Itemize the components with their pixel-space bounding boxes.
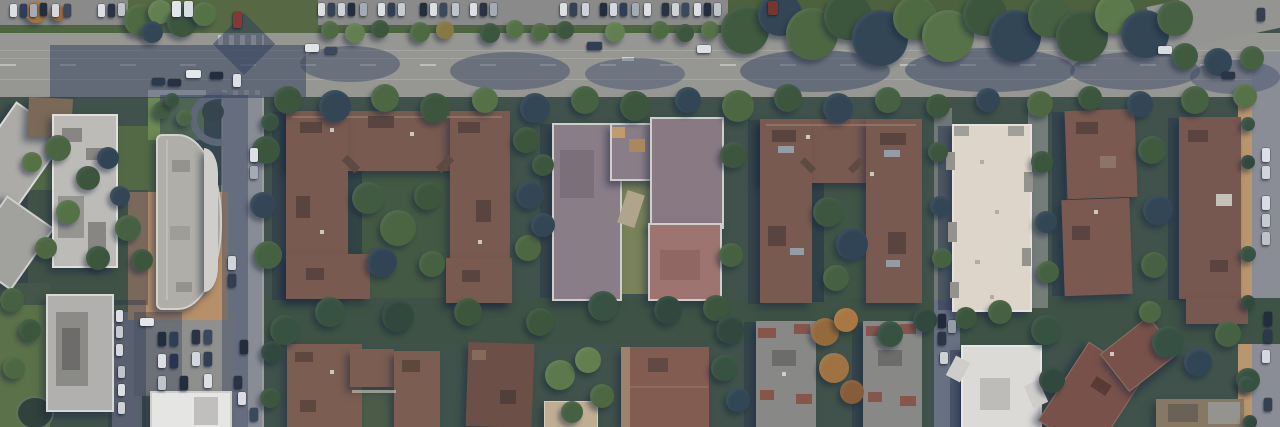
car-6 — [98, 4, 105, 17]
bldg-b-right-upper — [650, 117, 724, 229]
car-58 — [250, 166, 258, 179]
car-56 — [240, 340, 248, 354]
car-54 — [228, 256, 236, 270]
car-20 — [430, 3, 437, 16]
road-shadow-large — [50, 45, 306, 98]
tree-37 — [1240, 46, 1264, 70]
d-spot-4 — [990, 295, 994, 299]
tree-42 — [472, 87, 498, 113]
e-notch — [1100, 156, 1116, 168]
car-30 — [610, 3, 617, 16]
k1-vent — [782, 372, 786, 376]
c-vent-1 — [806, 135, 810, 139]
car-0 — [10, 4, 17, 17]
tree-56 — [1181, 86, 1209, 114]
tree-8 — [345, 23, 365, 43]
e-dark-2 — [1072, 226, 1090, 240]
car-43 — [152, 78, 165, 85]
tree-48 — [774, 84, 802, 112]
tree-123 — [110, 186, 130, 206]
a-dark-4 — [296, 196, 310, 218]
tree-64 — [250, 192, 276, 218]
car-19 — [420, 3, 427, 16]
tree-110 — [1139, 301, 1161, 323]
car-37 — [694, 3, 701, 16]
tree-83 — [930, 196, 950, 216]
car-41 — [1257, 8, 1265, 21]
car-75 — [192, 352, 200, 366]
car-25 — [490, 3, 497, 16]
tree-39 — [319, 90, 351, 122]
tree-97 — [716, 316, 744, 344]
car-40 — [768, 1, 778, 15]
tree-130 — [260, 388, 280, 408]
d-spot-3 — [975, 260, 980, 264]
car-12 — [328, 3, 335, 16]
a-dark-1 — [300, 122, 322, 133]
car-64 — [116, 344, 123, 356]
f-white-patch — [1216, 194, 1232, 206]
o-dark — [1168, 404, 1198, 422]
tree-55 — [1127, 91, 1153, 117]
d-corner-1 — [954, 126, 969, 136]
car-5 — [64, 4, 71, 17]
e-vent — [1094, 210, 1098, 214]
car-55 — [228, 274, 236, 287]
bldg-g-mid — [350, 349, 394, 387]
tree-111 — [1152, 326, 1184, 358]
j-edge — [621, 347, 630, 427]
car-44 — [168, 79, 181, 86]
tree-137 — [0, 288, 24, 312]
car-4 — [52, 4, 59, 17]
tree-79 — [813, 197, 843, 227]
tree-132 — [1241, 155, 1255, 169]
tree-84 — [932, 248, 952, 268]
tree-81 — [823, 265, 849, 291]
bldg-c-right — [866, 119, 922, 303]
car-81 — [938, 332, 946, 345]
bldg-curved-balconies — [204, 148, 218, 292]
d-spot-2 — [995, 210, 999, 214]
car-89 — [1264, 312, 1272, 326]
a-dark-3 — [458, 122, 480, 133]
car-22 — [452, 3, 459, 16]
tree-60 — [414, 182, 442, 210]
tree-52 — [976, 88, 1000, 112]
b-court-structure-1 — [612, 127, 625, 138]
g-dark-1 — [295, 352, 313, 362]
g-dark-3 — [402, 360, 420, 372]
tree-107 — [988, 300, 1012, 324]
car-52 — [233, 12, 242, 28]
car-29 — [600, 3, 607, 16]
tree-18 — [676, 24, 694, 42]
tree-116 — [76, 166, 100, 190]
tree-112 — [1184, 348, 1212, 376]
c-vent-2 — [870, 172, 874, 176]
tree-10 — [410, 22, 430, 42]
l4-core-dark — [62, 328, 80, 370]
tree-85 — [1031, 151, 1053, 173]
car-77 — [158, 376, 166, 390]
car-11 — [318, 3, 325, 16]
tree-80 — [836, 228, 868, 260]
tree-128 — [261, 113, 279, 131]
car-42 — [186, 70, 201, 78]
tree-87 — [1037, 261, 1059, 283]
car-34 — [662, 3, 669, 16]
car-31 — [620, 3, 627, 16]
tree-102 — [819, 353, 849, 383]
tree-135 — [1238, 376, 1254, 392]
tree-115 — [45, 135, 71, 161]
tree-105 — [913, 308, 937, 332]
tree-54 — [1078, 86, 1102, 110]
car-80 — [938, 314, 946, 328]
car-24 — [480, 3, 487, 16]
k1-red-2 — [794, 324, 810, 334]
car-28 — [582, 3, 589, 16]
car-61 — [250, 408, 258, 421]
car-69 — [158, 332, 166, 346]
tree-88 — [1138, 136, 1166, 164]
car-16 — [378, 3, 385, 16]
g-trim — [352, 390, 396, 393]
tree-117 — [56, 200, 80, 224]
tree-7 — [321, 21, 339, 39]
tree-106 — [955, 307, 977, 329]
car-90 — [1264, 330, 1272, 343]
tree-136 — [1243, 415, 1257, 427]
o-gray — [1208, 402, 1240, 424]
bldg-p-partial — [1186, 298, 1248, 324]
c-dark-2 — [880, 133, 906, 145]
tree-101 — [834, 308, 858, 332]
n-vent — [1110, 352, 1114, 356]
d-bump-4 — [1022, 248, 1031, 266]
car-87 — [1262, 214, 1270, 227]
a-vent-1 — [330, 128, 334, 132]
tree-61 — [367, 247, 397, 277]
bldg-bl-white — [150, 391, 232, 427]
car-78 — [180, 376, 188, 390]
k2-red-4 — [900, 396, 916, 406]
c-dark-4 — [888, 232, 906, 254]
tree-75 — [719, 243, 743, 267]
k1-red-3 — [760, 390, 774, 400]
tree-44 — [571, 86, 599, 114]
car-35 — [672, 3, 679, 16]
car-72 — [204, 330, 212, 344]
tree-127 — [165, 93, 179, 107]
h-dark — [500, 390, 516, 404]
car-60 — [238, 392, 246, 405]
tree-108 — [1031, 315, 1061, 345]
d-bump-2 — [1024, 172, 1033, 192]
car-49 — [697, 45, 711, 53]
tree-109 — [1039, 367, 1065, 393]
car-76 — [204, 352, 212, 366]
tree-122 — [22, 152, 42, 172]
tree-93 — [545, 360, 575, 390]
d-bump-3 — [948, 222, 957, 242]
car-23 — [470, 3, 477, 16]
f-dark-1 — [1188, 130, 1208, 142]
tree-43 — [520, 93, 550, 123]
tree-138 — [19, 319, 41, 341]
tree-65 — [254, 241, 282, 269]
car-48 — [587, 42, 602, 50]
a-vent-4 — [478, 240, 482, 244]
car-71 — [192, 330, 200, 344]
car-91 — [1262, 350, 1270, 363]
a-dark-6 — [306, 268, 324, 280]
bldg-d-white — [952, 124, 1032, 312]
car-82 — [948, 320, 956, 333]
tree-98 — [711, 355, 737, 381]
b-right-blotch — [660, 250, 700, 280]
tree-104 — [877, 321, 903, 347]
tree-16 — [605, 22, 625, 42]
tree-67 — [516, 181, 544, 209]
b-left-blotch — [560, 150, 594, 198]
tree-139 — [3, 357, 25, 379]
tree-6 — [141, 21, 163, 43]
aerial-photo — [0, 0, 1280, 427]
tree-133 — [1240, 246, 1256, 262]
car-59 — [234, 376, 242, 389]
tree-shadow-road-3 — [585, 58, 685, 90]
c-dark-1 — [772, 130, 796, 142]
c-skylight-4 — [886, 260, 900, 267]
car-79 — [204, 374, 212, 388]
h-light — [472, 350, 486, 360]
tree-68 — [515, 235, 541, 261]
car-9 — [172, 1, 181, 17]
tree-74 — [720, 142, 746, 168]
car-73 — [158, 354, 166, 368]
tree-77 — [654, 296, 682, 324]
f-dark-2 — [1210, 260, 1228, 272]
tree-72 — [532, 154, 554, 176]
car-15 — [360, 3, 367, 16]
tree-103 — [840, 380, 864, 404]
car-57 — [250, 148, 258, 162]
tree-45 — [620, 91, 650, 121]
car-62 — [116, 310, 123, 322]
a-vent-3 — [320, 230, 324, 234]
car-53 — [233, 74, 241, 87]
car-7 — [108, 4, 115, 17]
tree-121 — [35, 237, 57, 259]
tree-41 — [420, 93, 450, 123]
g-dark-2 — [300, 400, 316, 412]
curved-roof-unit-1 — [172, 160, 190, 172]
tree-17 — [651, 21, 669, 39]
a-dark-7 — [462, 270, 480, 282]
tree-15 — [556, 21, 574, 39]
a-vent-2 — [410, 132, 414, 136]
car-63 — [116, 326, 123, 338]
car-45 — [210, 72, 223, 79]
car-10 — [184, 1, 193, 17]
tree-69 — [315, 297, 345, 327]
c-skylight-3 — [790, 248, 804, 255]
tree-129 — [261, 341, 283, 363]
tree-38 — [274, 86, 302, 114]
car-85 — [1262, 166, 1270, 179]
tree-120 — [86, 246, 110, 270]
car-68 — [140, 318, 154, 326]
car-1 — [20, 4, 27, 17]
j-dark — [648, 358, 668, 372]
car-26 — [560, 3, 567, 16]
tree-19 — [701, 21, 719, 39]
tree-57 — [1233, 84, 1257, 108]
tree-99 — [726, 388, 750, 412]
tree-118 — [97, 147, 119, 169]
k2-core — [878, 350, 902, 366]
tree-51 — [926, 94, 950, 118]
tree-62 — [419, 251, 445, 277]
a-dark-5 — [476, 200, 491, 222]
tree-5 — [192, 2, 216, 26]
car-67 — [118, 402, 125, 414]
car-65 — [118, 366, 125, 378]
a-dark-2 — [368, 116, 394, 128]
tree-58 — [352, 182, 384, 214]
car-8 — [118, 3, 125, 16]
tree-35 — [1172, 43, 1198, 69]
car-14 — [348, 3, 355, 16]
tree-53 — [1027, 91, 1053, 117]
j-ridge — [630, 386, 708, 388]
tree-92 — [526, 308, 554, 336]
tree-14 — [531, 23, 549, 41]
car-39 — [714, 3, 721, 16]
tree-76 — [588, 291, 618, 321]
d-corner-2 — [1008, 126, 1024, 136]
car-88 — [1262, 232, 1270, 245]
tree-119 — [115, 215, 141, 241]
car-50 — [1158, 46, 1172, 54]
c-skylight-2 — [884, 150, 900, 157]
tree-34 — [1157, 0, 1193, 36]
curved-roof-unit-3 — [176, 282, 192, 292]
car-46 — [305, 44, 319, 52]
car-18 — [398, 3, 405, 16]
tree-113 — [1215, 321, 1241, 347]
d-bump-5 — [950, 282, 959, 298]
car-2 — [30, 4, 37, 17]
tree-94 — [575, 347, 601, 373]
tree-96 — [561, 401, 583, 423]
tree-13 — [506, 20, 524, 38]
tree-95 — [590, 384, 614, 408]
tree-70 — [382, 300, 414, 332]
car-17 — [388, 3, 395, 16]
bldg-a-left-foot — [286, 254, 370, 299]
c-skylight-1 — [778, 146, 794, 153]
c-ridge — [766, 124, 916, 126]
curved-roof-line — [166, 140, 168, 300]
tree-59 — [380, 210, 416, 246]
tree-46 — [675, 87, 701, 113]
tree-89 — [1143, 195, 1173, 225]
car-38 — [704, 3, 711, 16]
tree-47 — [722, 90, 754, 122]
tree-shadow-road-2 — [450, 52, 570, 90]
tree-73 — [531, 213, 555, 237]
tree-50 — [875, 87, 901, 113]
car-33 — [644, 3, 651, 16]
tree-49 — [823, 93, 853, 123]
curved-roof-unit-2 — [170, 226, 190, 240]
car-32 — [632, 3, 639, 16]
car-86 — [1262, 196, 1270, 210]
car-92 — [1264, 398, 1272, 411]
k1-red-1 — [758, 328, 776, 338]
tree-40 — [371, 84, 399, 112]
tree-126 — [176, 110, 192, 126]
g-vent — [330, 370, 334, 374]
car-21 — [440, 3, 447, 16]
tree-66 — [513, 127, 539, 153]
tree-11 — [436, 21, 454, 39]
tree-12 — [480, 23, 500, 43]
car-70 — [170, 332, 178, 346]
car-13 — [338, 3, 345, 16]
b-court-structure-2 — [629, 139, 645, 152]
tree-131 — [1241, 117, 1255, 131]
car-3 — [40, 3, 47, 16]
car-84 — [1262, 148, 1270, 162]
k2-red-3 — [868, 392, 882, 402]
car-36 — [682, 3, 689, 16]
d-spot-1 — [980, 160, 984, 164]
tree-90 — [1141, 252, 1167, 278]
car-74 — [170, 354, 178, 368]
tree-82 — [928, 142, 948, 162]
tree-134 — [1241, 295, 1255, 309]
car-47 — [325, 47, 337, 54]
l5-roof-unit — [194, 397, 218, 425]
car-51 — [1222, 72, 1235, 79]
car-66 — [118, 384, 125, 396]
car-83 — [940, 352, 948, 364]
k1-core — [772, 350, 796, 366]
car-27 — [570, 3, 577, 16]
e-dark-1 — [1076, 122, 1098, 134]
c-dark-3 — [768, 226, 786, 246]
m-inner — [980, 378, 1010, 410]
tree-124 — [131, 249, 153, 271]
tree-71 — [454, 298, 482, 326]
tree-9 — [371, 20, 389, 38]
k1-red-4 — [796, 394, 812, 404]
tree-86 — [1035, 211, 1057, 233]
